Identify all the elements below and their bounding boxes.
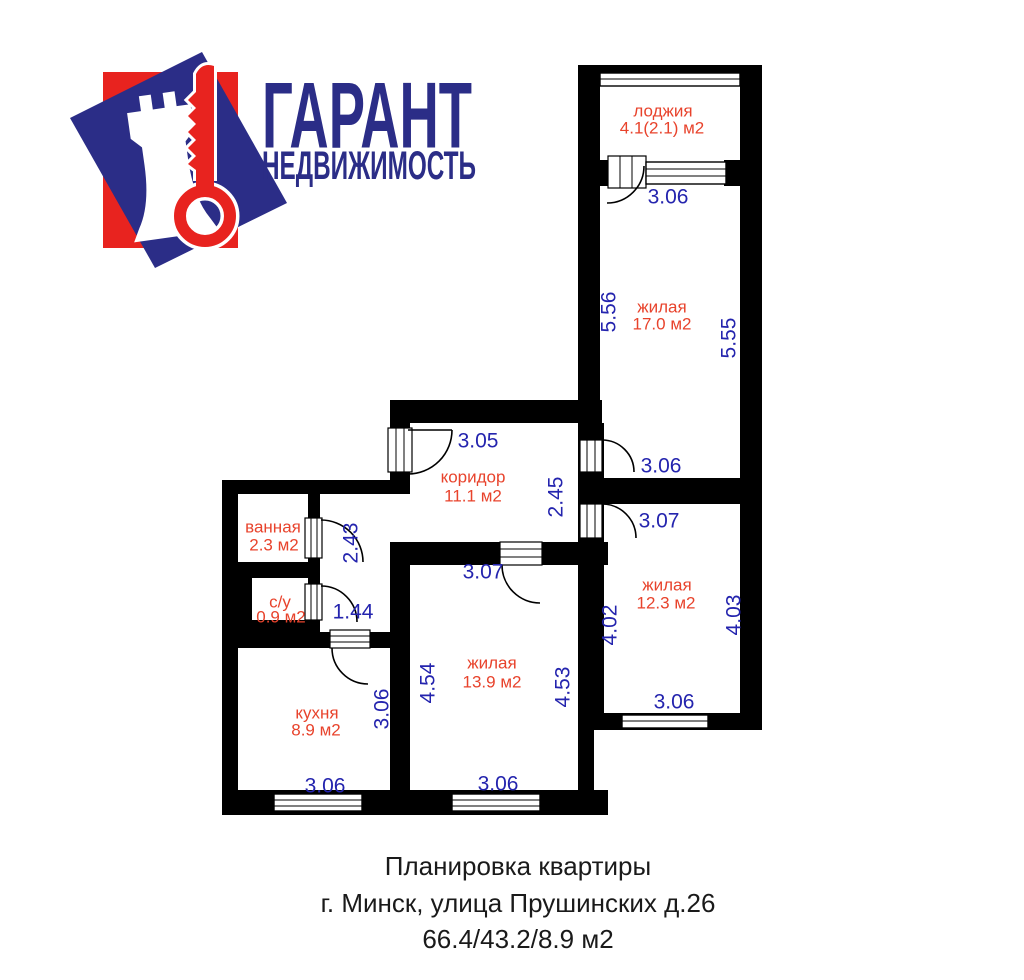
wall-segment	[390, 400, 410, 430]
living139-window-icon	[452, 794, 540, 811]
wall-segment	[222, 562, 320, 578]
balcony-door-window-icon	[608, 156, 726, 188]
dim-label: 4.03	[723, 595, 746, 636]
room-label-bathroom: ванная	[245, 518, 301, 537]
living17-door-icon	[580, 440, 634, 472]
dim-label: 3.06	[654, 691, 695, 714]
dim-label: 3.07	[639, 510, 680, 533]
agency-logo: ГАРАНТ НЕДВИЖИМОСТЬ	[70, 52, 476, 268]
wall-segment	[578, 65, 600, 160]
loggia-window-icon	[600, 73, 740, 86]
caption-areas: 66.4/43.2/8.9 м2	[422, 924, 613, 954]
dim-label: 2.45	[545, 477, 568, 518]
dim-label: 3.07	[463, 561, 504, 584]
floorplan-page: ГАРАНТ НЕДВИЖИМОСТЬ	[0, 0, 1024, 980]
room-area-kitchen: 8.9 м2	[291, 721, 341, 740]
dim-label: 1.44	[333, 601, 374, 624]
wall-segment	[222, 632, 332, 648]
room-area-living139: 13.9 м2	[463, 673, 522, 692]
dim-label: 3.06	[641, 455, 682, 478]
wall-segment	[602, 478, 742, 504]
dim-label: 2.43	[340, 523, 363, 564]
caption-title: Планировка квартиры	[385, 851, 651, 881]
room-area-living123: 12.3 м2	[637, 594, 696, 613]
room-area-loggia: 4.1(2.1) м2	[620, 119, 704, 138]
wall-segment	[740, 65, 762, 160]
wall-segment	[222, 480, 404, 494]
dim-label: 4.02	[599, 605, 622, 646]
dim-label: 4.53	[552, 667, 575, 708]
caption: Планировка квартиры г. Минск, улица Пруш…	[321, 851, 716, 954]
room-area-corridor: 11.1 м2	[444, 487, 502, 506]
dim-label: 5.56	[598, 292, 621, 333]
wall-segment	[390, 400, 602, 423]
dim-label: 3.06	[478, 773, 519, 796]
dim-label: 4.54	[417, 662, 440, 703]
room-label-living123: жилая	[642, 576, 691, 595]
living123-window-icon	[622, 715, 708, 728]
room-label-corridor: коридор	[441, 468, 506, 487]
room-area-living17: 17.0 м2	[633, 315, 692, 334]
wall-segment	[578, 160, 610, 186]
logo-subtitle: НЕДВИЖИМОСТЬ	[262, 144, 476, 188]
room-label-living139: жилая	[467, 654, 516, 673]
caption-address: г. Минск, улица Прушинских д.26	[321, 888, 716, 918]
dim-label: 3.06	[305, 775, 346, 798]
living123-door-icon	[580, 504, 636, 538]
dim-label: 3.05	[458, 430, 499, 453]
living139-door-icon	[500, 542, 542, 603]
room-area-wc: 0.9 м2	[256, 608, 306, 627]
wall-segment	[740, 160, 762, 730]
dim-label: 5.55	[718, 318, 741, 359]
kitchen-door-icon	[330, 630, 370, 684]
dim-label: 3.06	[648, 186, 689, 209]
dim-label: 3.06	[371, 689, 394, 730]
room-area-bathroom: 2.3 м2	[249, 536, 299, 555]
floorplan-canvas: ГАРАНТ НЕДВИЖИМОСТЬ	[0, 0, 1024, 980]
